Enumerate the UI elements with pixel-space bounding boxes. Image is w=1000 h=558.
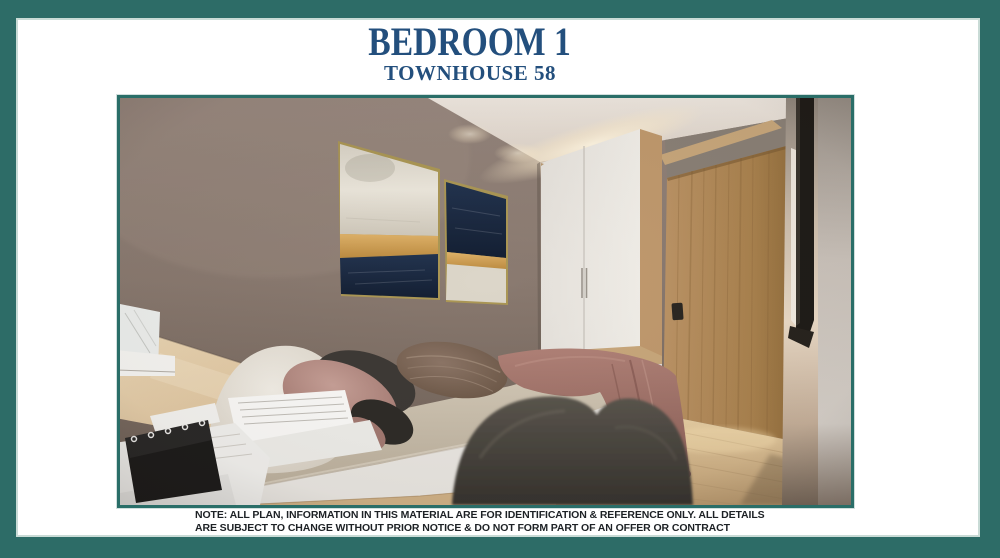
page-title: BEDROOM 1 [100,22,840,62]
disclaimer-note: NOTE: ALL PLAN, INFORMATION IN THIS MATE… [195,509,765,535]
disclaimer-line-2: ARE SUBJECT TO CHANGE WITHOUT PRIOR NOTI… [195,522,730,534]
vignette-overlay [120,98,851,505]
slide-page: BEDROOM 1 TOWNHOUSE 58 [0,0,1000,558]
title-block: BEDROOM 1 TOWNHOUSE 58 [100,22,840,84]
disclaimer-line-1: NOTE: ALL PLAN, INFORMATION IN THIS MATE… [195,509,765,521]
bedroom-render-image [117,95,854,508]
page-subtitle: TOWNHOUSE 58 [100,62,840,84]
bedroom-render-scene [120,98,851,505]
